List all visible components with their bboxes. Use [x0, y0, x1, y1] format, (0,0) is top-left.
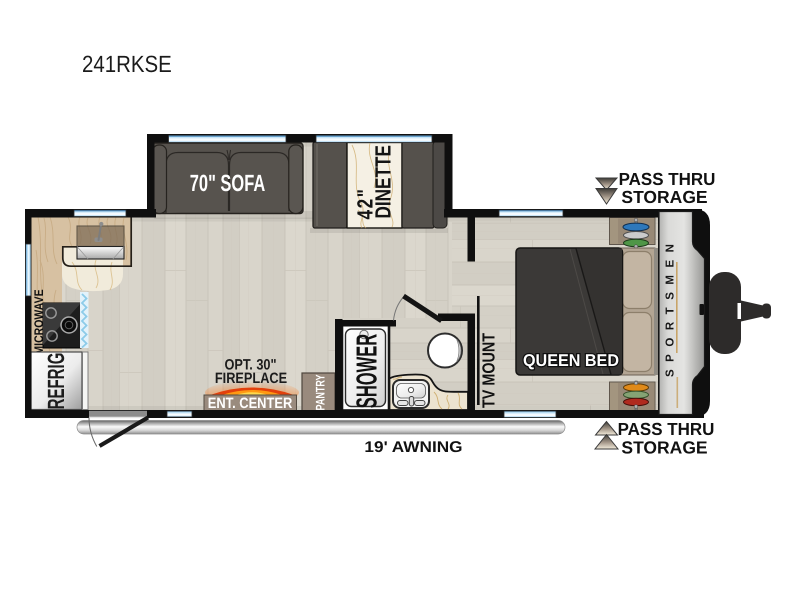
svg-text:FIREPLACE: FIREPLACE [215, 370, 287, 387]
svg-text:ENT. CENTER: ENT. CENTER [208, 395, 293, 412]
svg-text:MICROWAVE: MICROWAVE [32, 289, 46, 354]
svg-text:PANTRY: PANTRY [314, 374, 328, 410]
svg-text:DINETTE: DINETTE [371, 145, 396, 218]
svg-text:70" SOFA: 70" SOFA [190, 170, 265, 196]
svg-text:STORAGE: STORAGE [621, 187, 707, 207]
svg-text:241RKSE: 241RKSE [82, 51, 172, 77]
svg-text:REFRIG: REFRIG [43, 353, 69, 410]
svg-text:QUEEN BED: QUEEN BED [523, 351, 619, 370]
svg-text:TV MOUNT: TV MOUNT [479, 333, 499, 408]
svg-text:STORAGE: STORAGE [621, 438, 707, 458]
svg-text:SPORTSMEN: SPORTSMEN [665, 244, 677, 377]
svg-text:PASS THRU: PASS THRU [618, 419, 715, 439]
svg-text:PASS THRU: PASS THRU [619, 169, 716, 189]
svg-text:SHOWER: SHOWER [352, 334, 384, 408]
svg-text:19' AWNING: 19' AWNING [364, 439, 462, 456]
